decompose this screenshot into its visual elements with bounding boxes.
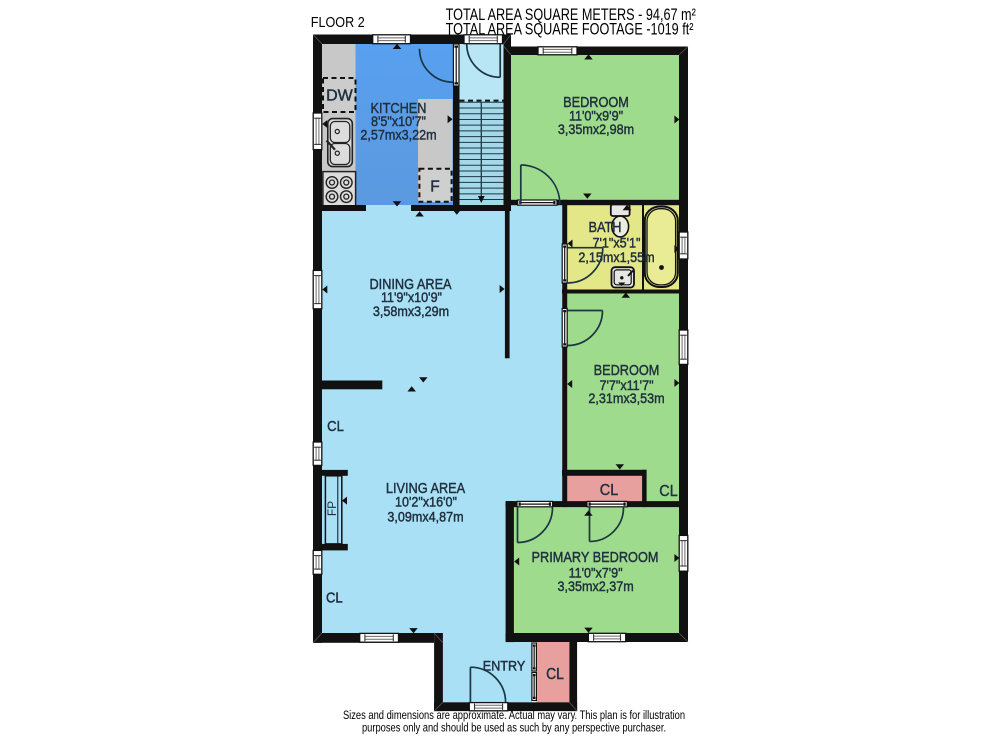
svg-text:CL: CL <box>600 481 618 499</box>
svg-text:TOTAL AREA SQUARE FOOTAGE -101: TOTAL AREA SQUARE FOOTAGE -1019 ft² <box>446 20 694 39</box>
svg-text:7'1"x5'1": 7'1"x5'1" <box>592 235 640 251</box>
svg-text:purposes only and should be us: purposes only and should be used as such… <box>362 722 666 735</box>
svg-text:FLOOR 2: FLOOR 2 <box>311 14 365 30</box>
svg-text:3,35mx2,98m: 3,35mx2,98m <box>558 121 634 137</box>
svg-text:DW: DW <box>326 88 354 105</box>
svg-text:FP: FP <box>325 501 339 516</box>
svg-text:CL: CL <box>326 590 343 606</box>
svg-text:3,35mx2,37m: 3,35mx2,37m <box>557 578 633 594</box>
svg-text:3,58mx3,29m: 3,58mx3,29m <box>373 303 449 319</box>
svg-text:CL: CL <box>546 666 564 683</box>
svg-text:BEDROOM: BEDROOM <box>594 361 660 378</box>
svg-text:Sizes and dimensions are appro: Sizes and dimensions are approximate. Ac… <box>343 709 685 722</box>
svg-text:CL: CL <box>659 482 677 500</box>
svg-text:ENTRY: ENTRY <box>483 658 526 674</box>
svg-text:BATH: BATH <box>588 218 621 235</box>
svg-text:PRIMARY BEDROOM: PRIMARY BEDROOM <box>532 548 659 565</box>
svg-text:10'2"x16'0": 10'2"x16'0" <box>395 494 457 510</box>
svg-text:2,57mx3,22m: 2,57mx3,22m <box>360 127 436 143</box>
svg-text:F: F <box>430 179 439 196</box>
svg-text:2,31mx3,53m: 2,31mx3,53m <box>588 390 664 406</box>
svg-text:CL: CL <box>327 418 344 434</box>
svg-text:2,15mx1,55m: 2,15mx1,55m <box>578 249 654 265</box>
svg-text:3,09mx4,87m: 3,09mx4,87m <box>387 509 463 525</box>
